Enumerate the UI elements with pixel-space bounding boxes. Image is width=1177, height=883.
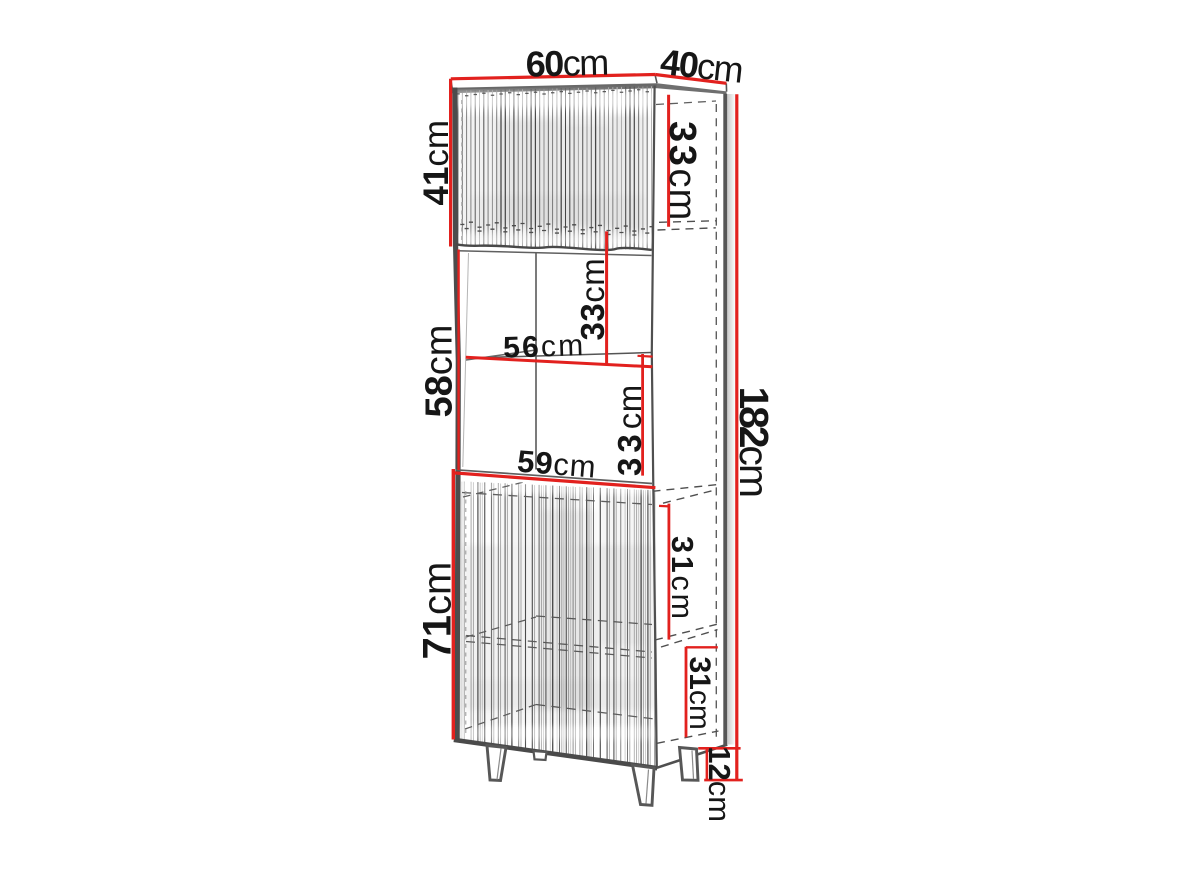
svg-text:58cm: 58cm (419, 325, 461, 418)
svg-text:33cm: 33cm (574, 258, 611, 341)
svg-text:59cm: 59cm (516, 444, 598, 485)
svg-text:71cm: 71cm (416, 562, 460, 660)
svg-text:31cm: 31cm (665, 536, 699, 622)
svg-text:60cm: 60cm (525, 42, 608, 85)
svg-text:12cm: 12cm (702, 746, 737, 822)
svg-text:182cm: 182cm (731, 387, 777, 496)
svg-text:31cm: 31cm (683, 657, 716, 730)
svg-text:41cm: 41cm (417, 120, 456, 206)
svg-text:33cm: 33cm (611, 384, 648, 476)
svg-text:33cm: 33cm (661, 121, 703, 222)
